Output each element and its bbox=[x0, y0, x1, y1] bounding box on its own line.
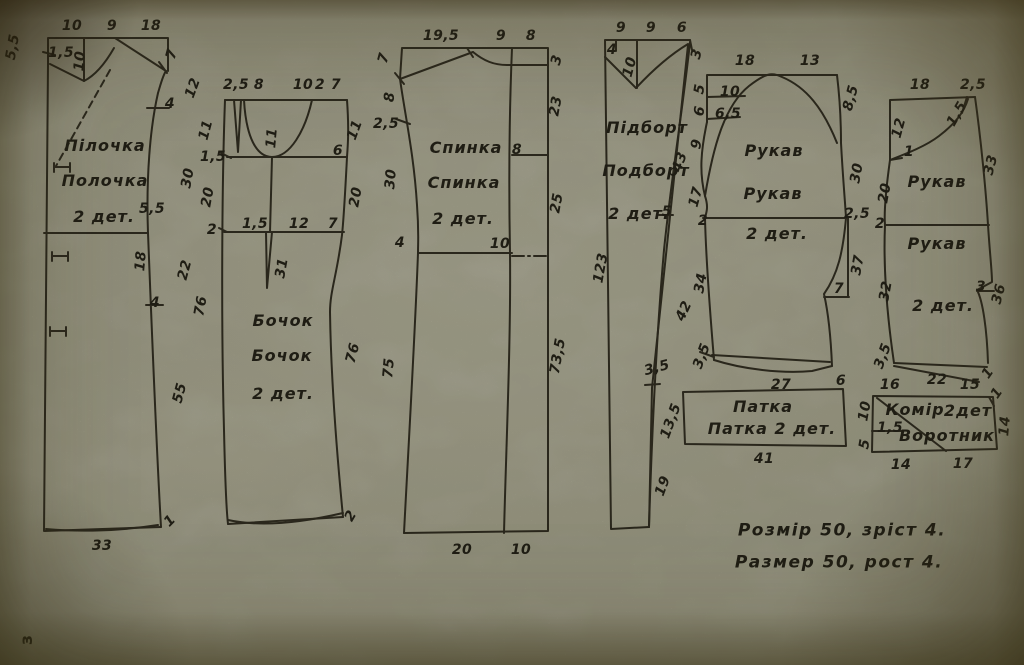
measurement-label: 22 bbox=[176, 258, 195, 281]
measurement-label: 4 bbox=[165, 97, 175, 111]
measurement-label: 9 bbox=[616, 21, 626, 35]
measurement-label: 7 bbox=[834, 282, 844, 296]
measurement-label: 23 bbox=[547, 95, 564, 117]
measurement-label: 2 bbox=[875, 217, 885, 231]
measurement-label: 20 bbox=[199, 186, 216, 208]
measurement-label: 1,5 bbox=[944, 99, 969, 129]
size-note: Розмір 50, зріст 4.Размер 50, рост 4. bbox=[0, 0, 1024, 665]
measurement-label: 8 bbox=[254, 78, 264, 92]
measurement-label: 11 bbox=[197, 118, 216, 141]
measurement-label: 9 bbox=[646, 21, 656, 35]
front-piece-outline bbox=[43, 38, 169, 531]
front-piece-labels: 109185,51,5107124305,51822455133ПілочкаП… bbox=[0, 0, 1024, 665]
piece-quantity: 2 дет. bbox=[746, 226, 808, 242]
measurement-label: 2,5 bbox=[373, 117, 399, 131]
measurement-label: 123 bbox=[591, 252, 610, 284]
measurement-label: 10 bbox=[621, 55, 640, 78]
measurement-label: 3 bbox=[689, 47, 705, 60]
measurement-label: 12 bbox=[890, 116, 909, 139]
piece-title: Підборт bbox=[606, 120, 688, 136]
back-piece-outline bbox=[395, 48, 548, 533]
measurement-label: 4 bbox=[607, 43, 617, 57]
measurement-label: 7 bbox=[331, 78, 341, 92]
measurement-label: 19 bbox=[653, 474, 673, 498]
piece-title: Полочка bbox=[62, 173, 149, 189]
piece-title: Воротник bbox=[899, 428, 995, 444]
measurement-label: 30 bbox=[179, 167, 196, 189]
piece-title: Рукав bbox=[908, 174, 967, 190]
measurement-label: 5,5 bbox=[139, 202, 165, 216]
piece-quantity: 2 дет. bbox=[608, 206, 670, 222]
measurement-label: 2,5 bbox=[223, 78, 249, 92]
measurement-label: 2 bbox=[698, 214, 708, 228]
measurement-label: 5,5 bbox=[4, 33, 22, 61]
measurement-label: 5 bbox=[662, 205, 672, 219]
measurement-label: 10 bbox=[856, 400, 873, 422]
measurement-label: 10 bbox=[62, 19, 82, 33]
measurement-label: 18 bbox=[133, 250, 149, 271]
piece-title: Рукав bbox=[908, 236, 967, 252]
measurement-label: 33 bbox=[982, 153, 1001, 176]
measurement-label: 33 bbox=[92, 539, 112, 553]
measurement-label: 15 bbox=[960, 378, 980, 392]
measurement-label: 10 bbox=[720, 85, 740, 99]
measurement-label: 12 bbox=[289, 217, 309, 231]
piece-title: Спинка bbox=[428, 175, 501, 191]
measurement-label: 6 bbox=[677, 21, 687, 35]
measurement-label: 3,5 bbox=[691, 341, 713, 370]
measurement-label: 9 bbox=[107, 19, 117, 33]
measurement-label: 31 bbox=[273, 257, 290, 279]
measurement-label: 3 bbox=[549, 53, 565, 66]
measurement-label: 16 bbox=[880, 378, 900, 392]
measurement-label: 17 bbox=[953, 457, 973, 471]
piece-quantity: 2 дет. bbox=[432, 211, 494, 227]
piece-title: Патка bbox=[733, 399, 793, 415]
measurement-label: 11 bbox=[345, 118, 365, 142]
measurement-label: 18 bbox=[735, 54, 755, 68]
back-piece-labels: 19,598782,5304753238251073,52010СпинкаСп… bbox=[0, 0, 1024, 665]
sleeve-under-piece-outline bbox=[885, 97, 994, 382]
measurement-label: 4 bbox=[395, 236, 405, 250]
measurement-label: 76 bbox=[192, 295, 209, 317]
measurement-label: 1 bbox=[161, 512, 178, 529]
measurement-label: 2,5 bbox=[844, 207, 870, 221]
measurement-label: 30 bbox=[383, 168, 399, 189]
measurement-label: 6 bbox=[836, 374, 846, 388]
measurement-label: 7 bbox=[164, 47, 180, 60]
piece-quantity: 2 дет. bbox=[252, 386, 314, 402]
measurement-label: 6 bbox=[692, 105, 708, 117]
piece-title: Бочок bbox=[252, 313, 313, 329]
measurement-label: 9 bbox=[689, 138, 705, 150]
measurement-label: 13 bbox=[800, 54, 820, 68]
measurement-label: 10 bbox=[511, 543, 531, 557]
measurement-label: 6,5 bbox=[715, 107, 741, 121]
measurement-label: 42 bbox=[673, 299, 694, 323]
measurement-label: 8 bbox=[383, 91, 398, 102]
measurement-label: 1,5 bbox=[242, 217, 268, 231]
page-number: з bbox=[17, 635, 37, 645]
sleeve-top-piece-outline bbox=[700, 74, 849, 372]
measurement-label: 10 bbox=[72, 50, 88, 71]
measurement-label: 27 bbox=[771, 378, 791, 392]
measurement-label: 5 bbox=[857, 438, 873, 450]
measurement-label: 25 bbox=[548, 192, 565, 214]
measurement-label: 36 bbox=[990, 282, 1009, 305]
measurement-label: 1 bbox=[979, 365, 996, 381]
pattern-drawing bbox=[0, 0, 1024, 665]
sleeve-top-piece-labels: 1813569172106,58,5302,5377343,5276РукавР… bbox=[0, 0, 1024, 665]
piece-title: Рукав bbox=[744, 186, 803, 202]
measurement-label: 10 bbox=[293, 78, 313, 92]
measurement-label: 18 bbox=[910, 78, 930, 92]
measurement-label: 3,5 bbox=[643, 358, 672, 378]
size-note-line-russian: Размер 50, рост 4. bbox=[735, 555, 943, 572]
measurement-label: 1,5 bbox=[200, 150, 226, 164]
measurement-label: 73,5 bbox=[548, 337, 568, 375]
side-piece-labels: 2,581027111,520211611201,51273176762Бочо… bbox=[0, 0, 1024, 665]
measurement-label: 20 bbox=[876, 182, 893, 204]
measurement-label: 3,5 bbox=[872, 341, 894, 370]
piece-title: Пілочка bbox=[64, 138, 145, 154]
measurement-label: 1 bbox=[904, 145, 914, 159]
piece-quantity: 2 дет. bbox=[73, 209, 135, 225]
measurement-label: 2 bbox=[207, 223, 217, 237]
measurement-label: 3 bbox=[976, 280, 986, 294]
size-note-line-ukrainian: Розмір 50, зріст 4. bbox=[738, 523, 946, 540]
measurement-label: 8,5 bbox=[841, 84, 861, 113]
photo-vignette bbox=[0, 0, 1024, 665]
measurement-label: 14 bbox=[997, 415, 1013, 436]
measurement-label: 10 bbox=[490, 237, 510, 251]
piece-title: Бочок bbox=[251, 348, 312, 364]
sewing-pattern-sheet: 109185,51,5107124305,51822455133ПілочкаП… bbox=[0, 0, 1024, 665]
paper-texture bbox=[0, 0, 1024, 665]
measurement-label: 19,5 bbox=[423, 29, 459, 43]
measurement-label: 8 bbox=[526, 29, 536, 43]
measurement-label: 76 bbox=[344, 341, 363, 364]
measurement-label: 1,5 bbox=[877, 421, 903, 435]
measurement-label: 2,5 bbox=[960, 78, 986, 92]
tab-piece-outline bbox=[683, 389, 846, 446]
measurement-label: 7 bbox=[328, 217, 338, 231]
measurement-label: 8 bbox=[512, 143, 522, 157]
measurement-label: 14 bbox=[891, 458, 911, 472]
measurement-label: 4 bbox=[150, 296, 160, 310]
measurement-label: 75 bbox=[381, 357, 397, 378]
measurement-label: 17 bbox=[687, 185, 706, 208]
measurement-label: 2 bbox=[315, 78, 325, 92]
measurement-label: 32 bbox=[877, 280, 894, 302]
measurement-label: 43 bbox=[670, 150, 690, 174]
measurement-label: 13,5 bbox=[658, 402, 684, 441]
piece-quantity: 2 дет. bbox=[912, 298, 974, 314]
measurement-label: 41 bbox=[754, 452, 774, 466]
sleeve-under-piece-labels: 182,5121,5120233323363,5221РукавРукав2 д… bbox=[0, 0, 1024, 665]
measurement-label: 1 bbox=[988, 385, 1005, 401]
collar-piece-outline bbox=[872, 396, 997, 452]
measurement-label: 9 bbox=[496, 29, 506, 43]
measurement-label: 11 bbox=[264, 127, 280, 148]
measurement-label: 1,5 bbox=[48, 46, 74, 60]
piece-title: Патка 2 дет. bbox=[708, 421, 837, 437]
side-piece-outline bbox=[219, 100, 348, 524]
piece-title: Рукав bbox=[745, 143, 804, 159]
collar-piece-labels: 16151101,55141417Комір2детВоротник bbox=[0, 0, 1024, 665]
measurement-label: 7 bbox=[376, 51, 392, 64]
piece-quantity: 2дет bbox=[944, 403, 992, 419]
measurement-label: 30 bbox=[848, 162, 865, 184]
measurement-label: 22 bbox=[927, 373, 947, 387]
piece-title: Подборт bbox=[602, 163, 689, 179]
measurement-label: 37 bbox=[849, 254, 866, 276]
measurement-label: 2 bbox=[342, 508, 359, 524]
facing-piece-labels: 9964103435123423,513,519ПідбортПодборт2 … bbox=[0, 0, 1024, 665]
measurement-label: 5 bbox=[692, 83, 708, 95]
measurement-label: 55 bbox=[171, 381, 190, 404]
facing-piece-outline bbox=[605, 40, 692, 529]
measurement-label: 12 bbox=[183, 76, 203, 100]
piece-title: Комір bbox=[885, 402, 944, 418]
tab-piece-labels: ПаткаПатка 2 дет.41 bbox=[0, 0, 1024, 665]
measurement-label: 20 bbox=[452, 543, 472, 557]
measurement-label: 18 bbox=[141, 19, 161, 33]
piece-title: Спинка bbox=[430, 140, 503, 156]
measurement-label: 6 bbox=[333, 144, 343, 158]
measurement-label: 20 bbox=[347, 186, 364, 208]
measurement-label: 34 bbox=[692, 272, 709, 294]
